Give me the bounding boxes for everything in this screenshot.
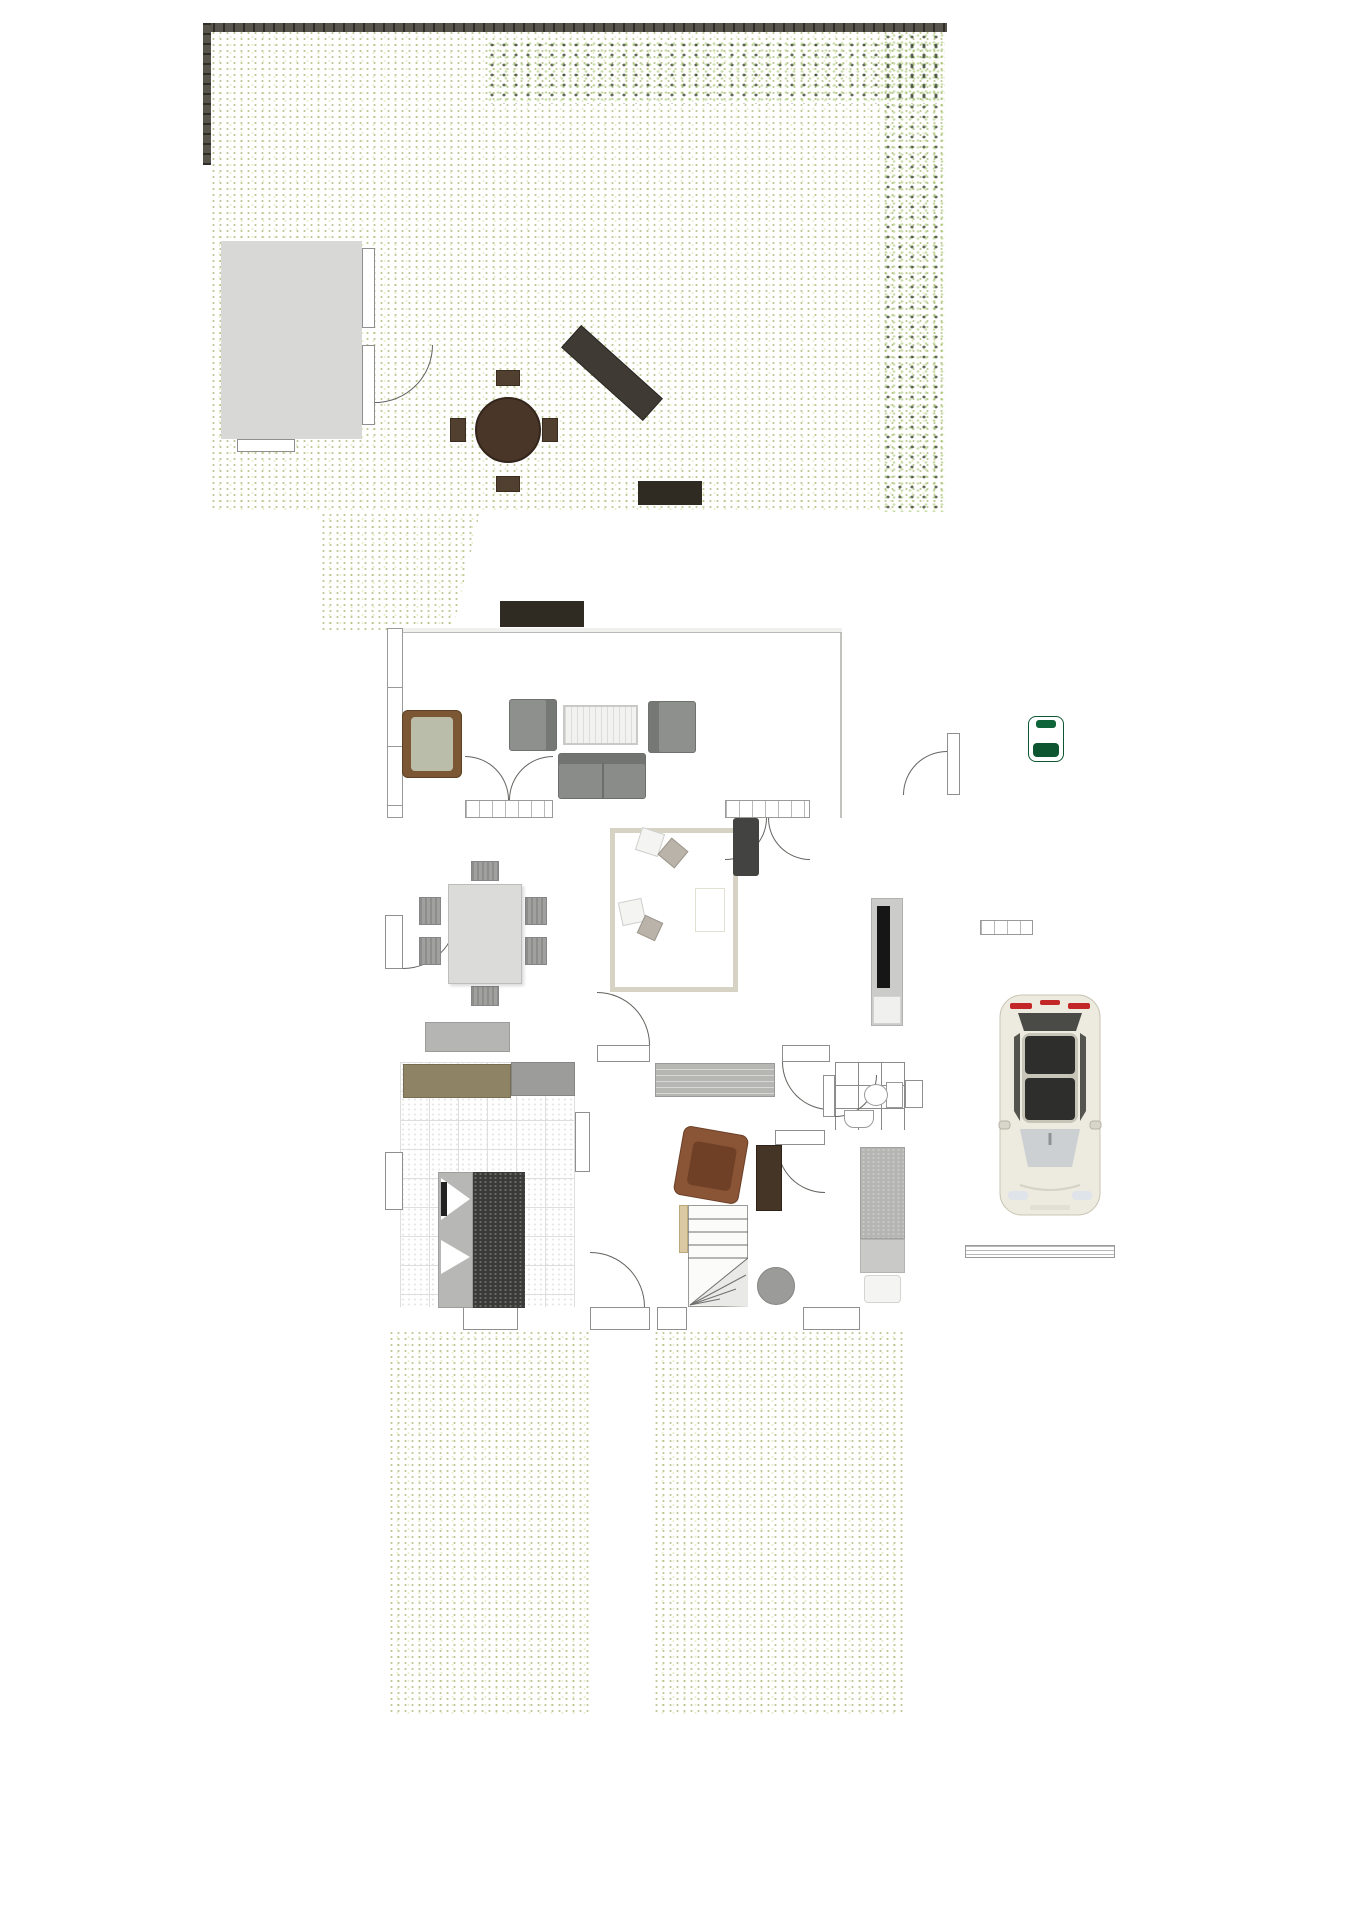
kitchen-counter-top — [403, 1064, 511, 1098]
garage-shelf — [1063, 935, 1128, 953]
dining-chair — [471, 986, 499, 1006]
kitchen-window-bottom — [463, 1307, 518, 1330]
winder-staircase — [688, 1205, 748, 1307]
kitchen-faucet — [441, 1182, 447, 1216]
dining-chair — [471, 861, 499, 881]
white-flowering-tree — [706, 1520, 881, 1695]
driveway-below-garage — [903, 1255, 1160, 1714]
floor-plan — [0, 0, 1357, 1920]
patio-chair — [496, 476, 520, 492]
terrace-armchair — [509, 699, 557, 751]
kitchen-appliance — [511, 1062, 575, 1096]
mower-deck — [1033, 743, 1059, 757]
shed-window — [362, 248, 375, 328]
red-flower-bush — [408, 1522, 478, 1592]
rattan-lounger — [402, 710, 462, 778]
terrace-edge-top — [403, 628, 842, 633]
green-bush — [780, 414, 876, 510]
patio-chair — [496, 370, 520, 386]
french-door — [465, 800, 553, 818]
white-flowering-tree — [386, 1336, 551, 1501]
terrace-armchair — [648, 701, 696, 753]
bedroom-door — [775, 1130, 825, 1145]
hall-window — [657, 1307, 687, 1330]
toilet-bowl — [864, 1084, 888, 1106]
street-bush — [735, 1752, 847, 1864]
living-hall-door — [597, 1045, 650, 1062]
garden-fence-top — [203, 23, 947, 32]
large-bush — [190, 383, 335, 528]
pouf — [757, 1267, 795, 1305]
lawn-mower — [1028, 716, 1064, 762]
bedroom-window — [803, 1307, 860, 1330]
lounger-cushion — [411, 717, 453, 771]
french-door — [725, 800, 810, 818]
wardrobe — [756, 1145, 782, 1211]
front-door-path — [593, 1330, 653, 1714]
white-flower-bush — [392, 452, 452, 512]
bathroom-window — [905, 1080, 923, 1108]
armchair-seat — [686, 1141, 737, 1192]
washbasin — [844, 1110, 874, 1128]
corner-sofa-chaise — [733, 818, 759, 876]
front-door — [590, 1307, 650, 1330]
potted-plant — [858, 833, 896, 869]
apple-tree — [378, 75, 533, 230]
shed-workbench — [256, 246, 358, 273]
flower-planter — [500, 601, 584, 627]
dining-chair — [525, 897, 547, 925]
living-room-side-door — [385, 915, 403, 969]
storage-shelf — [1106, 800, 1128, 868]
bathroom-door — [823, 1075, 835, 1117]
toilet-cistern — [886, 1082, 903, 1108]
garage-door — [965, 1245, 1115, 1258]
kitchen-door-opening — [575, 1210, 590, 1255]
storage-shelf — [1106, 720, 1128, 788]
hall-armchair — [672, 1125, 749, 1205]
street — [212, 1714, 1167, 1893]
patio-chair — [542, 418, 558, 442]
hall-sideboard — [655, 1063, 775, 1097]
kitchen-pass-through — [575, 1112, 590, 1172]
mower-handle — [1036, 720, 1056, 728]
lawn-strip-below-garden — [320, 512, 480, 630]
storage-door — [947, 733, 960, 795]
patio-round-table — [475, 397, 541, 463]
yellow-flower-bush — [384, 366, 438, 420]
kitchen-worktop-dark — [473, 1172, 525, 1308]
bed-sheet — [860, 1239, 905, 1273]
bed-pillow — [864, 1275, 901, 1303]
dining-table — [448, 884, 522, 984]
garden-fence-left — [203, 23, 211, 165]
living-hall-door-2 — [782, 1045, 830, 1062]
driveway-left — [212, 512, 388, 1714]
rug-pattern — [695, 888, 725, 932]
small-bush — [657, 1330, 693, 1364]
storage-garage-opening — [980, 920, 1033, 935]
car — [998, 993, 1102, 1217]
potted-plant — [404, 820, 440, 854]
shed-door — [362, 345, 375, 425]
red-rose-bush — [468, 505, 526, 563]
apple-tree — [730, 82, 858, 210]
terrace-glazing-left — [387, 628, 403, 818]
kitchen-window-left — [385, 1152, 403, 1210]
stair-handrail — [679, 1205, 688, 1253]
bed-duvet — [860, 1147, 905, 1239]
white-meadow-flowers — [806, 352, 868, 404]
patio-chair — [450, 418, 466, 442]
terrace-coffee-table — [563, 705, 638, 745]
white-flower-bush — [655, 372, 719, 436]
tv-screen — [877, 906, 890, 988]
dining-chair — [419, 897, 441, 925]
dining-chair — [419, 937, 441, 965]
yellow-flower-bush — [484, 1624, 540, 1680]
shed-shelf — [221, 246, 255, 345]
flower-planter — [638, 481, 702, 505]
hedge-top — [486, 40, 945, 104]
loveseat-split — [602, 762, 604, 798]
hedge-right — [882, 32, 945, 512]
terrace-loveseat — [558, 753, 646, 799]
dining-sideboard — [425, 1022, 510, 1052]
tv-shelf — [873, 996, 901, 1024]
dining-chair — [525, 937, 547, 965]
